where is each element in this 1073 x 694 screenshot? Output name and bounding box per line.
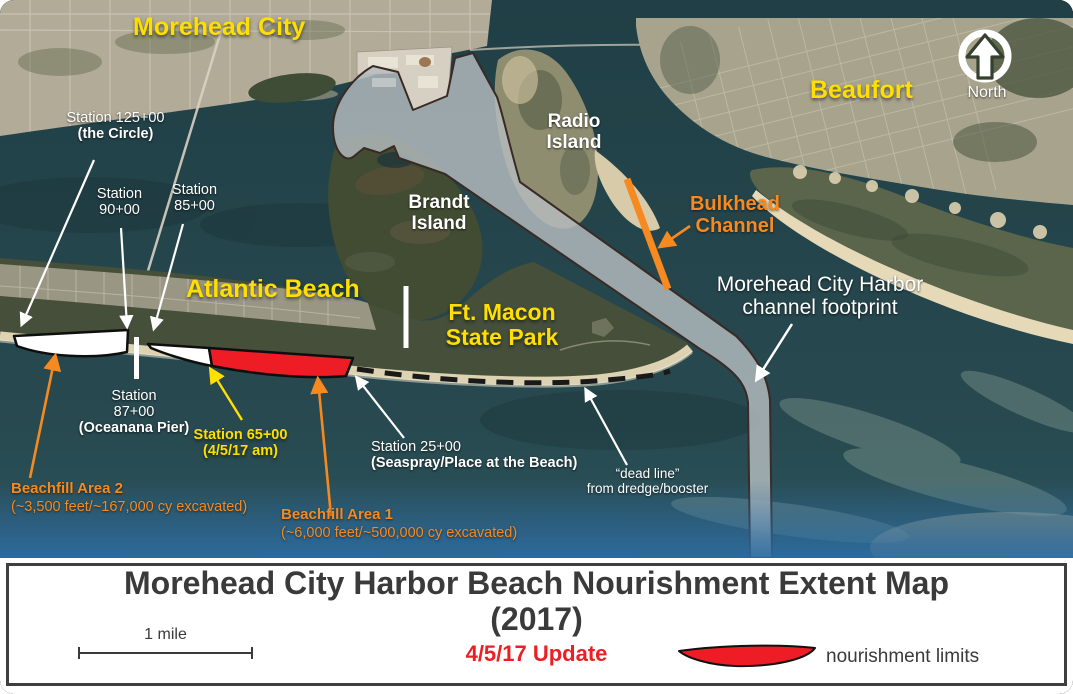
station-87-line3: (Oceanana Pier)	[79, 420, 189, 436]
label-ft-macon: Ft. Macon State Park	[434, 300, 570, 351]
station-85-line1: Station	[172, 182, 217, 198]
brandt-island-line1: Brandt	[408, 192, 469, 213]
map-title-line1: Morehead City Harbor Beach Nourishment E…	[124, 565, 949, 601]
station-25-line1: Station 25+00	[371, 439, 461, 455]
map-title-line2: (2017)	[490, 601, 583, 637]
label-dead-line: “dead line” from dredge/booster	[570, 466, 725, 496]
label-harbor-footprint: Morehead City Harbor channel footprint	[701, 274, 939, 319]
label-station-90: Station 90+00	[92, 186, 147, 218]
bulkhead-line2: Channel	[696, 215, 775, 237]
station-87-line1: Station	[111, 388, 156, 404]
label-beaufort: Beaufort	[810, 76, 913, 104]
ft-macon-boundary-marker	[404, 286, 409, 348]
station-65-line2: (4/5/17 am)	[203, 443, 278, 459]
label-brandt-island: Brandt Island	[400, 192, 478, 235]
nourishment-limits-icon	[676, 642, 818, 673]
beachfill-2-line2: (~3,500 feet/~167,000 cy excavated)	[11, 499, 247, 515]
station-125-line2: (the Circle)	[78, 126, 154, 142]
station-87-line2: 87+00	[114, 404, 155, 420]
title-panel: Morehead City Harbor Beach Nourishment E…	[0, 558, 1073, 694]
label-station-65: Station 65+00 (4/5/17 am)	[188, 427, 293, 459]
radio-island-line1: Radio	[548, 111, 601, 132]
label-beachfill-area-2: Beachfill Area 2 (~3,500 feet/~167,000 c…	[11, 480, 247, 516]
harbor-footprint-line1: Morehead City Harbor	[717, 273, 924, 296]
nourishment-limits-label: nourishment limits	[826, 646, 979, 668]
scale-bar	[77, 646, 254, 665]
brandt-island-line2: Island	[412, 213, 467, 234]
label-station-125: Station 125+00 (the Circle)	[58, 110, 173, 142]
station-90-line2: 90+00	[99, 202, 140, 218]
label-morehead-city: Morehead City	[133, 13, 305, 41]
beachfill-1-line2: (~6,000 feet/~500,000 cy excavated)	[281, 525, 517, 541]
north-arrow-icon	[958, 29, 1012, 83]
station-65-line1: Station 65+00	[194, 427, 288, 443]
label-radio-island: Radio Island	[538, 111, 610, 154]
dead-line-line1: “dead line”	[616, 466, 680, 481]
bulkhead-line1: Bulkhead	[690, 193, 780, 215]
scale-bar-label: 1 mile	[79, 626, 252, 644]
dead-line-line2: from dredge/booster	[587, 481, 709, 496]
label-bulkhead-channel: Bulkhead Channel	[682, 193, 788, 238]
oceanana-pier-marker	[134, 337, 139, 379]
beachfill-1-line1: Beachfill Area 1	[281, 506, 393, 523]
label-station-87: Station 87+00 (Oceanana Pier)	[76, 388, 192, 437]
ft-macon-line2: State Park	[446, 324, 559, 350]
satellite-map: Morehead City Beaufort Atlantic Beach No…	[0, 0, 1073, 558]
radio-island-line2: Island	[547, 132, 602, 153]
harbor-footprint-line2: channel footprint	[742, 296, 897, 319]
map-figure: Morehead City Beaufort Atlantic Beach No…	[0, 0, 1073, 694]
north-label: North	[958, 84, 1016, 102]
ft-macon-line1: Ft. Macon	[448, 299, 555, 325]
north-indicator: North	[958, 29, 1016, 102]
label-atlantic-beach: Atlantic Beach	[186, 275, 360, 303]
label-beachfill-area-1: Beachfill Area 1 (~6,000 feet/~500,000 c…	[281, 506, 517, 542]
beachfill-2-line1: Beachfill Area 2	[11, 480, 123, 497]
station-85-line2: 85+00	[174, 198, 215, 214]
label-station-25: Station 25+00 (Seaspray/Place at the Bea…	[371, 439, 577, 471]
station-125-line1: Station 125+00	[67, 110, 165, 126]
station-25-line2: (Seaspray/Place at the Beach)	[371, 455, 577, 471]
station-90-line1: Station	[97, 186, 142, 202]
label-station-85: Station 85+00	[167, 182, 222, 214]
